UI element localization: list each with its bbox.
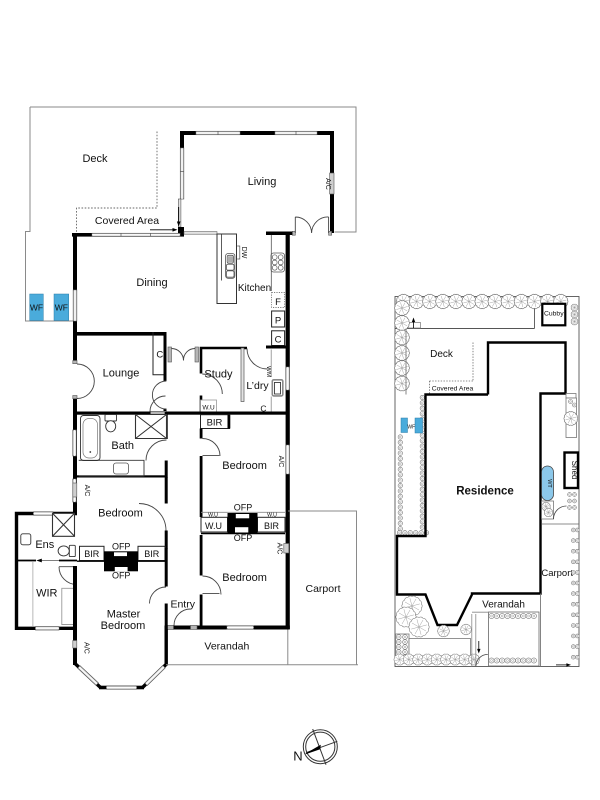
svg-text:BIR: BIR bbox=[264, 521, 280, 531]
svg-text:Carport: Carport bbox=[541, 568, 573, 579]
svg-text:Deck: Deck bbox=[82, 153, 108, 165]
svg-text:Dining: Dining bbox=[136, 277, 167, 289]
svg-text:Residence: Residence bbox=[456, 486, 514, 498]
svg-text:WF: WF bbox=[55, 303, 68, 313]
svg-text:BIR: BIR bbox=[144, 549, 160, 559]
svg-text:Living: Living bbox=[248, 176, 277, 188]
svg-text:A/C: A/C bbox=[82, 642, 89, 654]
svg-text:OFP: OFP bbox=[112, 571, 131, 581]
svg-text:WF: WF bbox=[407, 425, 415, 431]
svg-text:Bedroom: Bedroom bbox=[222, 460, 267, 472]
svg-text:W.U: W.U bbox=[205, 521, 222, 531]
svg-text:F: F bbox=[275, 297, 281, 308]
svg-text:L’dry: L’dry bbox=[246, 380, 269, 392]
svg-text:A/C: A/C bbox=[277, 456, 284, 468]
svg-text:A/C: A/C bbox=[83, 485, 90, 497]
svg-text:WT: WT bbox=[546, 479, 552, 488]
svg-text:Carport: Carport bbox=[305, 583, 340, 595]
svg-text:Bedroom: Bedroom bbox=[101, 620, 146, 632]
svg-text:Deck: Deck bbox=[430, 349, 454, 360]
svg-text:BIR: BIR bbox=[207, 418, 223, 429]
svg-text:N: N bbox=[293, 749, 302, 764]
svg-text:A/C: A/C bbox=[276, 543, 283, 555]
svg-text:WF: WF bbox=[30, 303, 43, 313]
svg-text:BIR: BIR bbox=[84, 549, 100, 559]
svg-text:Lounge: Lounge bbox=[103, 368, 140, 380]
svg-text:Study: Study bbox=[204, 369, 233, 381]
svg-text:Covered Area: Covered Area bbox=[95, 215, 159, 227]
svg-text:Entry: Entry bbox=[170, 598, 195, 610]
svg-text:OFP: OFP bbox=[234, 503, 253, 513]
svg-text:C: C bbox=[275, 335, 282, 346]
svg-text:Bedroom: Bedroom bbox=[222, 572, 267, 584]
svg-text:Bath: Bath bbox=[111, 440, 134, 452]
svg-text:DW: DW bbox=[240, 247, 247, 259]
svg-text:W.U: W.U bbox=[202, 405, 215, 412]
svg-text:Cubby: Cubby bbox=[544, 311, 564, 318]
svg-text:C: C bbox=[156, 350, 163, 361]
svg-text:P: P bbox=[275, 316, 281, 327]
svg-text:Verandah: Verandah bbox=[204, 641, 249, 653]
svg-text:OFP: OFP bbox=[234, 533, 253, 543]
svg-text:Verandah: Verandah bbox=[482, 600, 525, 611]
svg-text:A/C: A/C bbox=[324, 178, 331, 190]
svg-text:Ens: Ens bbox=[35, 539, 54, 551]
svg-text:OFP: OFP bbox=[112, 542, 131, 552]
svg-text:Shed: Shed bbox=[570, 461, 579, 480]
svg-text:WIR: WIR bbox=[36, 588, 57, 600]
svg-text:Kitchen: Kitchen bbox=[238, 283, 271, 294]
svg-text:Covered Area: Covered Area bbox=[432, 386, 474, 393]
svg-text:Bedroom: Bedroom bbox=[98, 508, 143, 520]
svg-text:Master: Master bbox=[107, 609, 141, 621]
